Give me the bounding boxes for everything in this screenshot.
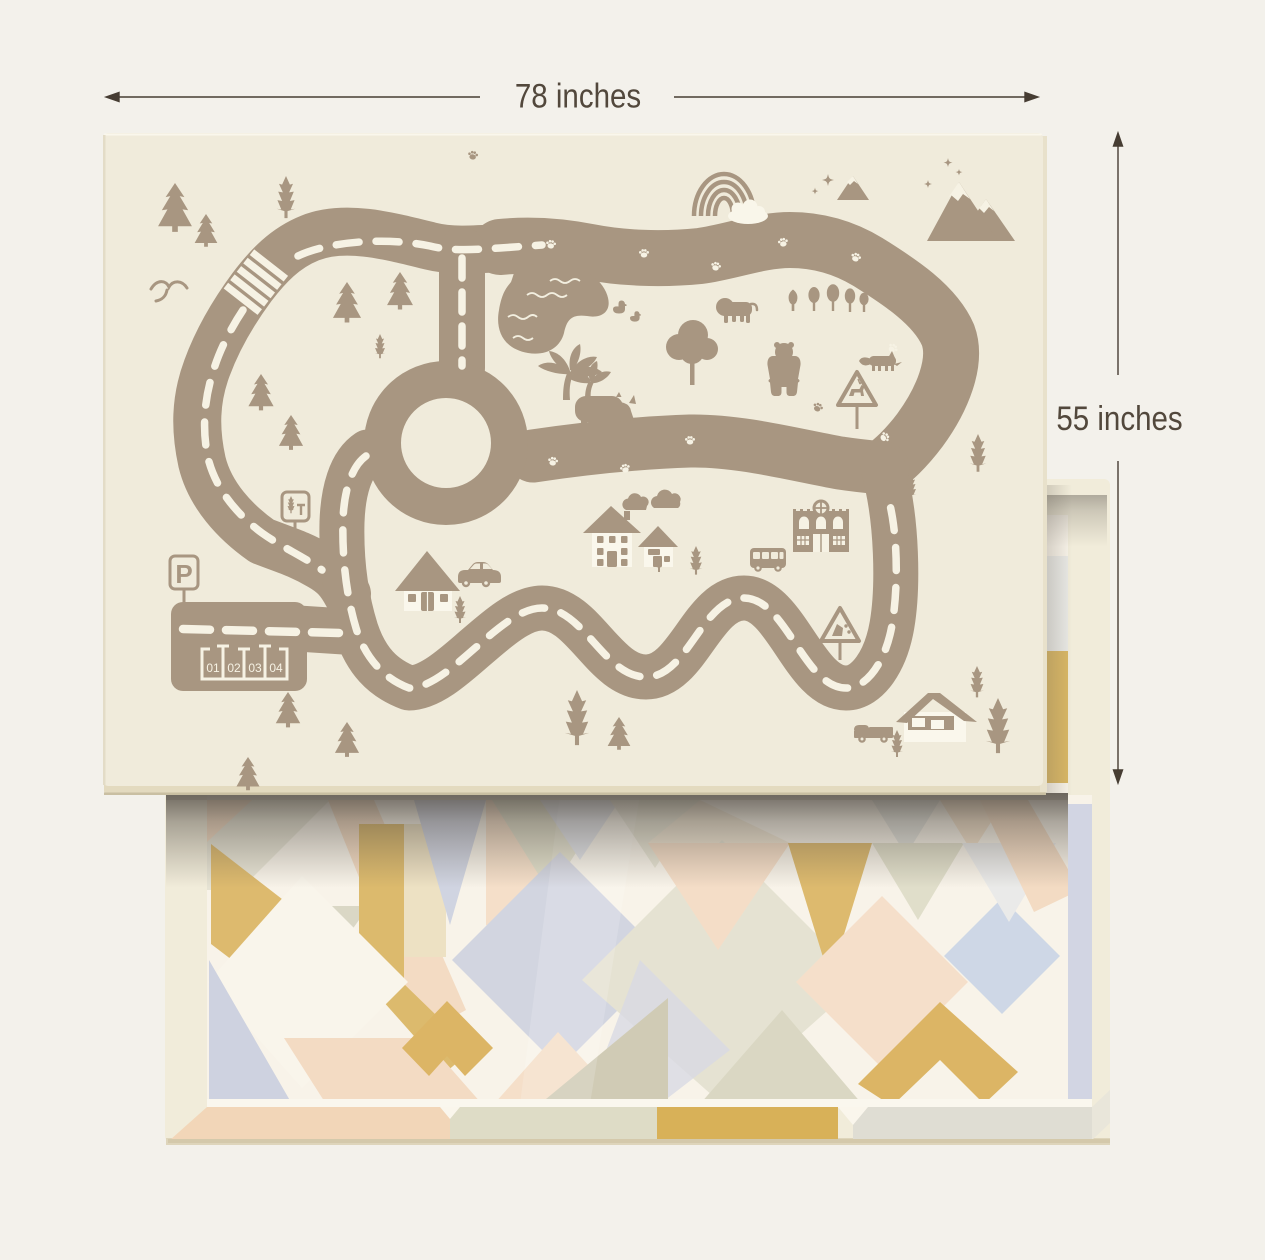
svg-text:01: 01 bbox=[206, 661, 220, 675]
svg-text:04: 04 bbox=[269, 661, 283, 675]
svg-text:P: P bbox=[175, 559, 192, 589]
svg-text:02: 02 bbox=[227, 661, 241, 675]
svg-text:78 inches: 78 inches bbox=[515, 77, 641, 115]
svg-text:55 inches: 55 inches bbox=[1056, 399, 1182, 437]
svg-text:03: 03 bbox=[248, 661, 262, 675]
